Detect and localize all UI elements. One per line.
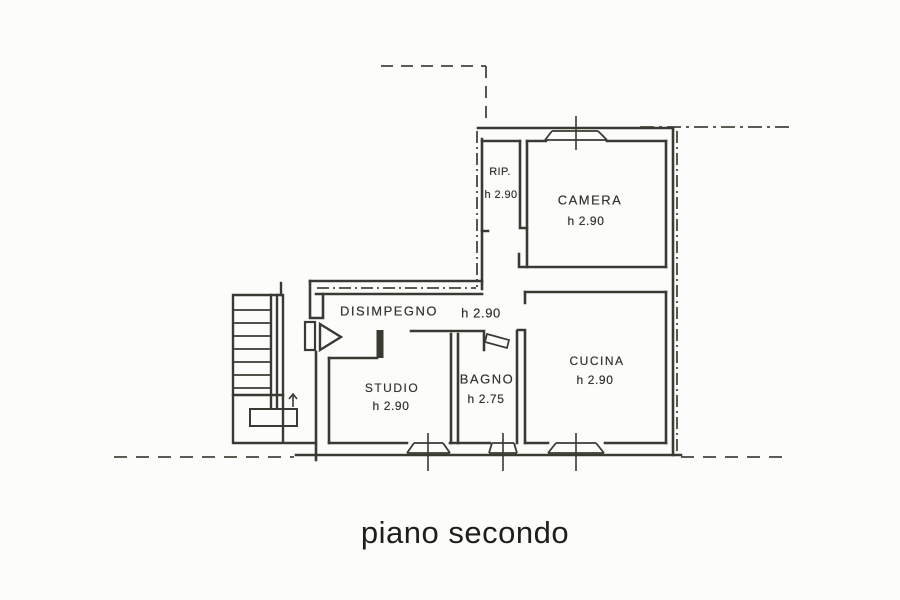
door-leaf-icon [485,334,509,348]
room-height-cucina: h 2.90 [577,373,614,387]
staircase-enclosure [233,283,316,443]
room-label-cucina: CUCINA [569,354,624,368]
up-arrow-icon [289,394,297,407]
room-label-rip: RIP. [489,166,511,178]
room-label-studio: STUDIO [365,381,419,395]
room-label-bagno: BAGNO [460,372,514,387]
room-height-studio: h 2.90 [373,399,410,413]
stair-return-flight [250,409,297,426]
room-height-rip: h 2.90 [485,189,518,201]
window-sill-icon [489,433,517,471]
room-height-bagno: h 2.75 [468,392,505,406]
floor-plan-drawing [0,0,900,600]
door-swing-icon [305,322,341,350]
floor-plan-page: RIP. h 2.90 CAMERA h 2.90 DISIMPEGNO h 2… [0,0,900,600]
staircase-treads [233,310,271,388]
room-height-disimpegno: h 2.90 [461,306,501,321]
room-label-camera: CAMERA [558,193,623,208]
window-sill-icon [545,116,607,150]
room-height-camera: h 2.90 [568,214,605,228]
room-label-disimpegno: DISIMPEGNO [340,304,438,319]
floor-caption: piano secondo [361,515,569,551]
window-sill-icon [548,433,604,471]
staircase [233,283,316,443]
window-sill-icon [407,433,450,471]
